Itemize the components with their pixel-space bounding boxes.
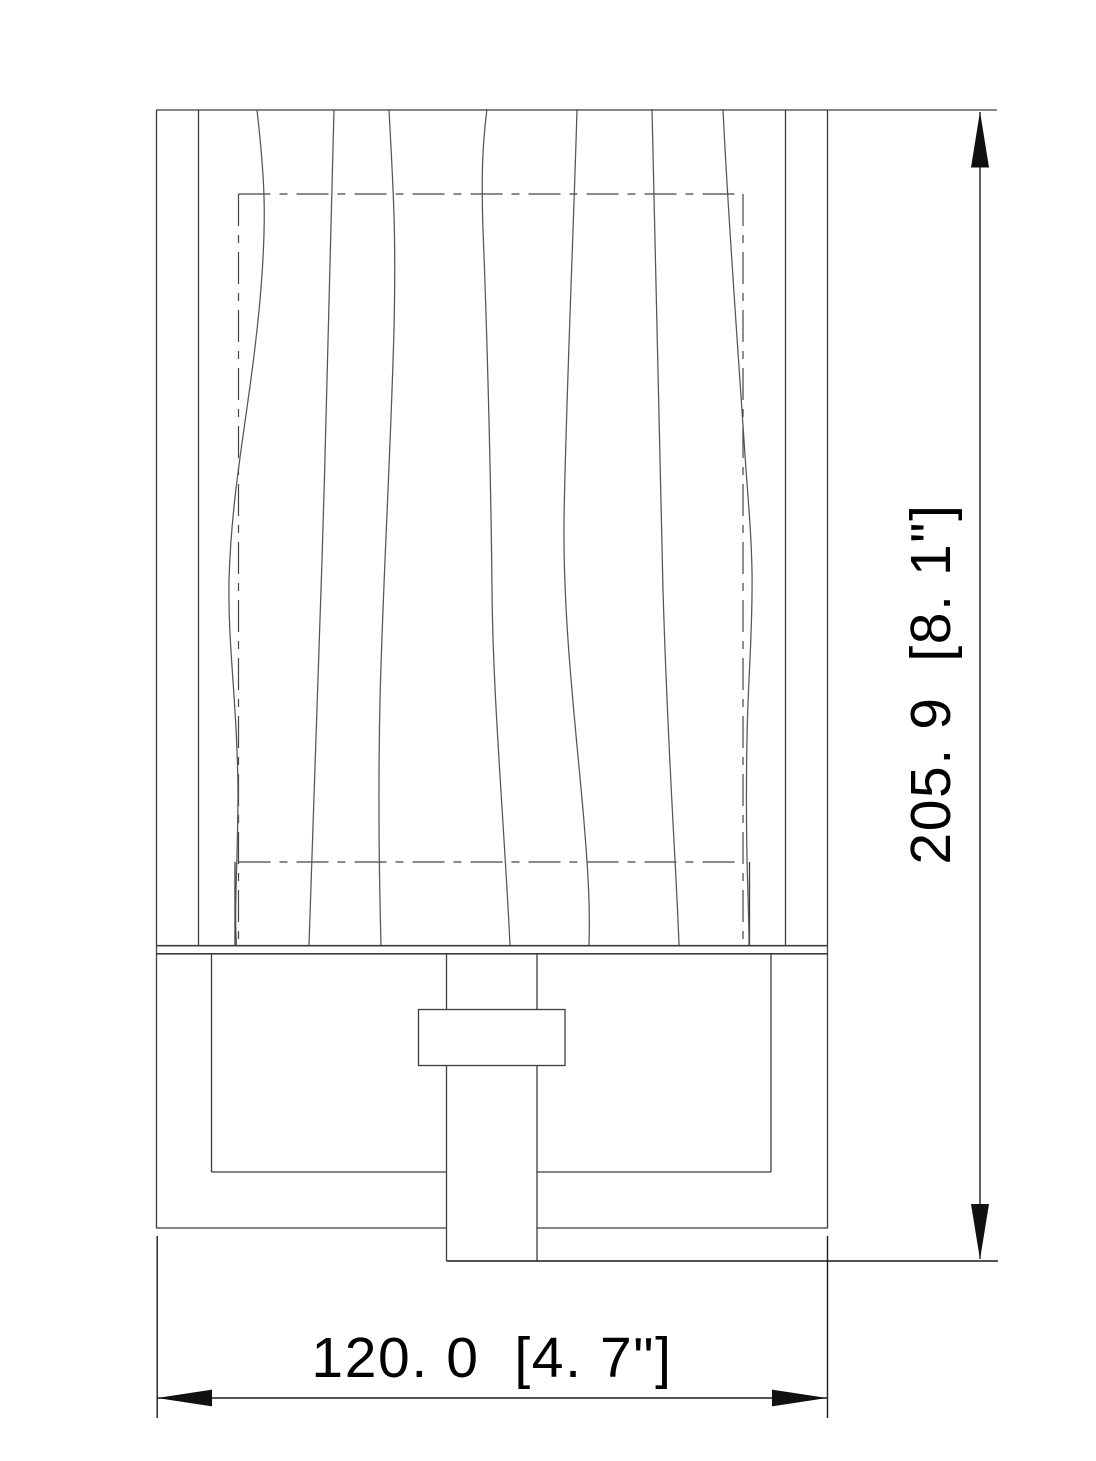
svg-text:120. 0 [4. 7"]: 120. 0 [4. 7"] xyxy=(311,1326,672,1390)
svg-text:205. 9 [8. 1"]: 205. 9 [8. 1"] xyxy=(899,503,963,864)
